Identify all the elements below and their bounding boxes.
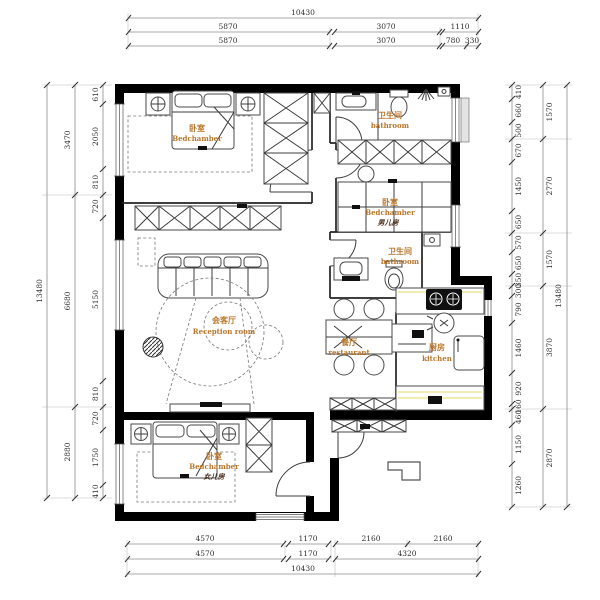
nightstand-right (219, 424, 239, 444)
dim-label: 720 (91, 199, 100, 214)
dim-label: 3070 (376, 22, 395, 31)
rug-detail (204, 302, 252, 350)
dim-label: 2870 (545, 448, 554, 467)
pipe-chase (461, 98, 469, 142)
dim-label: 780 (446, 36, 461, 45)
floorplan-screenshot: 10430 5870 3070 1110 5870 3070 780 330 4… (0, 0, 600, 600)
door-arc-bedroom-girl (276, 462, 310, 496)
dim-label: 3870 (545, 338, 554, 357)
chair (364, 299, 384, 319)
dim-label: 4570 (195, 534, 214, 543)
storage-row (135, 204, 281, 230)
dim-label: 5150 (91, 290, 100, 309)
room-master-bedroom: 卧室 Bedchamber (128, 91, 308, 184)
room-bedroom-girl: 卧室 Bedchamber 女儿房 (131, 418, 272, 502)
room-label-zh: 卫生间 (378, 110, 402, 120)
dim-label: 10430 (291, 8, 315, 17)
dim-label: 650 (514, 256, 523, 271)
dim-label: 13480 (35, 279, 44, 303)
duct-box (424, 234, 440, 246)
sideboard (392, 324, 432, 352)
dim-label: 5870 (218, 36, 237, 45)
dim-label: 300 (514, 284, 523, 299)
dim-label: 4570 (195, 549, 214, 558)
dimensions-right: 410 660 500 670 1450 650 570 650 350 300… (505, 82, 572, 510)
chair (334, 299, 354, 319)
room-label-zh: 卧室 (382, 197, 398, 207)
room-label-en: restaurant (328, 348, 370, 357)
room-label-en: bathroom (381, 257, 420, 266)
dim-label: 1570 (545, 250, 554, 269)
room-label-en: bathroom (371, 121, 410, 130)
dim-label: 610 (91, 87, 100, 102)
dim-label: 1170 (298, 549, 317, 558)
wardrobe (264, 93, 308, 184)
dim-label: 2160 (433, 534, 452, 543)
dimensions-left: 610 2050 810 720 5150 810 720 1750 410 3… (35, 82, 112, 501)
kitchen-cabinet-row (330, 398, 396, 410)
dimensions-top: 10430 5870 3070 1110 5870 3070 780 330 (126, 8, 481, 50)
dim-label: 660 (514, 103, 523, 118)
stove (426, 289, 462, 310)
room-label-zh: 卧室 (189, 123, 205, 133)
dim-label: 3470 (63, 130, 72, 149)
dim-label: 570 (514, 235, 523, 250)
door-arc-entry (338, 432, 364, 458)
dim-label: 1170 (298, 534, 317, 543)
pouf (143, 337, 163, 357)
chair (334, 355, 354, 375)
room-label-en: kitchen (422, 354, 452, 363)
room-label-en: Bedchamber (365, 208, 415, 217)
dim-label: 460 (514, 410, 523, 425)
room-label-zh: 餐厅 (340, 337, 357, 347)
entry-step (388, 462, 420, 480)
room-bedroom-boy: 卧室 Bedchamber 男儿房 (338, 140, 451, 232)
chair (364, 355, 384, 375)
room-label-zh: 厨房 (429, 342, 445, 352)
dim-label: 2160 (361, 534, 380, 543)
dim-label: 650 (514, 215, 523, 230)
cabinet-row (338, 140, 451, 164)
hall-closet (314, 93, 330, 113)
room-label-zh: 会客厅 (212, 315, 236, 325)
tv-sightlines (166, 298, 254, 404)
dim-label: 10430 (291, 564, 315, 573)
dim-label: 790 (514, 302, 523, 317)
sink (334, 258, 368, 281)
dim-label: 920 (514, 381, 523, 396)
room-label-en: Bedchamber (189, 462, 239, 471)
dim-label: 1570 (545, 102, 554, 121)
dimensions-bottom: 4570 1170 2160 2160 4570 1170 4320 10430 (125, 534, 481, 577)
dim-label: 410 (514, 85, 523, 100)
dim-label: 1750 (91, 448, 100, 467)
door-arc-bathroom-top (336, 117, 362, 143)
dim-label: 810 (91, 387, 100, 402)
dim-label: 410 (91, 484, 100, 499)
dim-label: 1450 (514, 177, 523, 196)
room-label-en: Reception room (193, 327, 256, 336)
dim-label: 6680 (63, 291, 72, 310)
dim-label: 810 (91, 175, 100, 190)
nightstand-left (146, 93, 170, 115)
dim-label: 2050 (91, 127, 100, 146)
dim-label: 1150 (514, 435, 523, 454)
room-label-zh: 卫生间 (388, 246, 412, 256)
nightstand-right (236, 93, 260, 115)
shoe-cabinet-row (332, 420, 406, 432)
dim-label: 1260 (514, 476, 523, 495)
dim-label: 670 (514, 143, 523, 158)
dim-label: 5870 (218, 22, 237, 31)
wardrobe (246, 418, 272, 472)
side-table (138, 238, 155, 266)
dim-label: 13480 (554, 284, 563, 308)
dim-label: 1460 (514, 338, 523, 357)
room-label-zh: 卧室 (206, 451, 222, 461)
dim-label: 720 (91, 411, 100, 426)
floorplan-canvas: 10430 5870 3070 1110 5870 3070 780 330 4… (0, 0, 600, 600)
room-label-en: Bedchamber (172, 134, 222, 143)
counter-bottom (396, 386, 484, 410)
dim-label: 2880 (63, 442, 72, 461)
dim-label: 3070 (376, 36, 395, 45)
stool (358, 166, 374, 182)
dim-label: 1110 (450, 22, 469, 31)
fridge (454, 336, 484, 370)
entry-area (332, 420, 420, 480)
room-bathroom-top: 卫生间 bathroom (336, 87, 450, 143)
dim-label: 330 (465, 36, 480, 45)
nightstand-left (131, 424, 151, 444)
room-label-sub: 男儿房 (378, 218, 400, 227)
dim-label: 500 (514, 123, 523, 138)
tv-cabinet (170, 402, 250, 412)
room-reception: 会客厅 Reception room (135, 204, 283, 412)
dim-label: 2770 (545, 176, 554, 195)
room-label-sub: 女儿房 (204, 472, 226, 481)
dim-label: 4320 (397, 549, 416, 558)
sink (336, 91, 376, 110)
